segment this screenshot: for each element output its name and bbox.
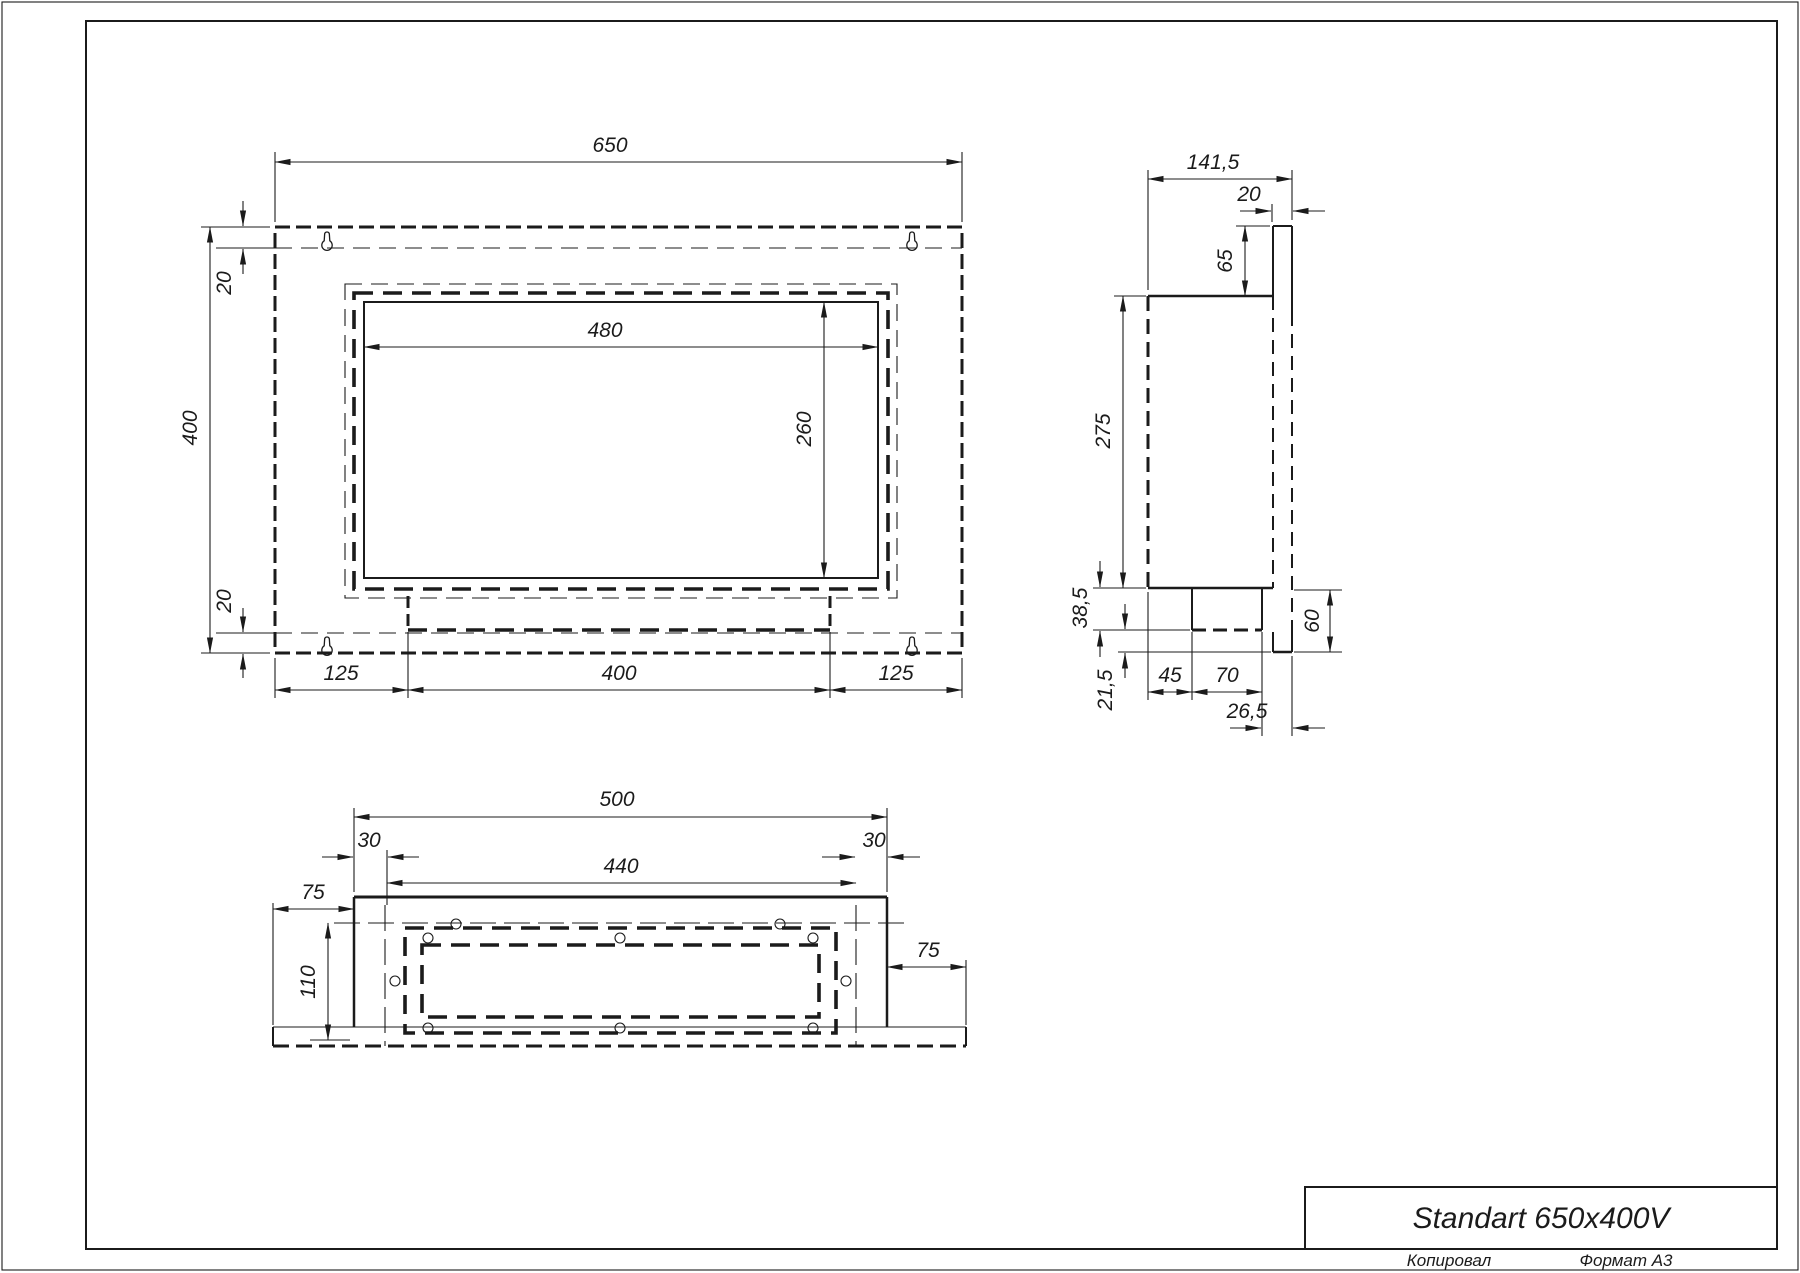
dim-bottom-body-width: 500 bbox=[599, 788, 634, 811]
hole bbox=[615, 1023, 625, 1033]
dim-bottom-inset-left: 30 bbox=[357, 829, 381, 852]
dim-front-opening-width: 480 bbox=[587, 319, 622, 342]
dim-side-front-offset: 26,5 bbox=[1226, 700, 1268, 723]
side-view: 141,5 20 65 275 38,5 21,5 bbox=[1069, 151, 1342, 736]
copied-label: Копировал bbox=[1407, 1251, 1492, 1270]
page-edge bbox=[2, 2, 1798, 1270]
hole bbox=[451, 919, 461, 929]
dim-side-depth: 141,5 bbox=[1187, 151, 1240, 174]
drawing-frame bbox=[86, 21, 1777, 1249]
hole bbox=[423, 933, 433, 943]
page-frame bbox=[2, 2, 1798, 1270]
dim-bottom-holes-span: 440 bbox=[603, 855, 638, 878]
dim-front-margin-left: 125 bbox=[323, 662, 358, 685]
dim-side-body-height: 275 bbox=[1092, 413, 1115, 449]
hole bbox=[775, 919, 785, 929]
dim-bottom-flange-right: 75 bbox=[916, 939, 940, 962]
bottom-dimensions: 500 30 440 30 75 75 110 bbox=[273, 788, 966, 1040]
dim-side-top-inset: 65 bbox=[1214, 249, 1237, 273]
side-dimensions: 141,5 20 65 275 38,5 21,5 bbox=[1069, 151, 1342, 736]
drawing-canvas: 650 400 20 20 480 260 bbox=[0, 0, 1800, 1273]
dim-bottom-body-depth: 110 bbox=[297, 965, 320, 999]
front-view: 650 400 20 20 480 260 bbox=[179, 134, 962, 698]
hole bbox=[808, 933, 818, 943]
dim-front-margin-right: 125 bbox=[878, 662, 913, 685]
dim-side-bottom-inset: 21,5 bbox=[1094, 669, 1117, 711]
dim-front-offset-bottom: 20 bbox=[213, 589, 236, 614]
drawing-title: Standart 650x400V bbox=[1413, 1202, 1673, 1235]
bottom-frame-inner bbox=[422, 945, 819, 1017]
dim-side-tray-depth: 38,5 bbox=[1069, 587, 1092, 628]
hole bbox=[841, 976, 851, 986]
dim-bottom-inset-right: 30 bbox=[862, 829, 886, 852]
dim-front-opening-height: 260 bbox=[793, 411, 816, 447]
dim-bottom-flange-left: 75 bbox=[301, 881, 325, 904]
dim-front-offset-top: 20 bbox=[213, 271, 236, 296]
front-dimensions: 650 400 20 20 480 260 bbox=[179, 134, 962, 698]
bottom-view: 500 30 440 30 75 75 110 bbox=[273, 788, 966, 1046]
dim-side-tray-width: 70 bbox=[1215, 664, 1239, 687]
dim-side-lower-height: 60 bbox=[1301, 609, 1324, 633]
dim-front-burner-width: 400 bbox=[601, 662, 636, 685]
title-block: Standart 650x400V Копировал Формат А3 bbox=[1305, 1187, 1777, 1270]
dim-side-flange-thickness: 20 bbox=[1236, 183, 1261, 206]
dim-front-height: 400 bbox=[179, 410, 202, 445]
hole bbox=[390, 976, 400, 986]
drawing-sheet: 650 400 20 20 480 260 bbox=[0, 0, 1800, 1273]
dim-side-tray-offset: 45 bbox=[1158, 664, 1182, 687]
hole bbox=[615, 933, 625, 943]
format-label: Формат А3 bbox=[1579, 1251, 1673, 1270]
dim-front-width: 650 bbox=[592, 134, 627, 157]
